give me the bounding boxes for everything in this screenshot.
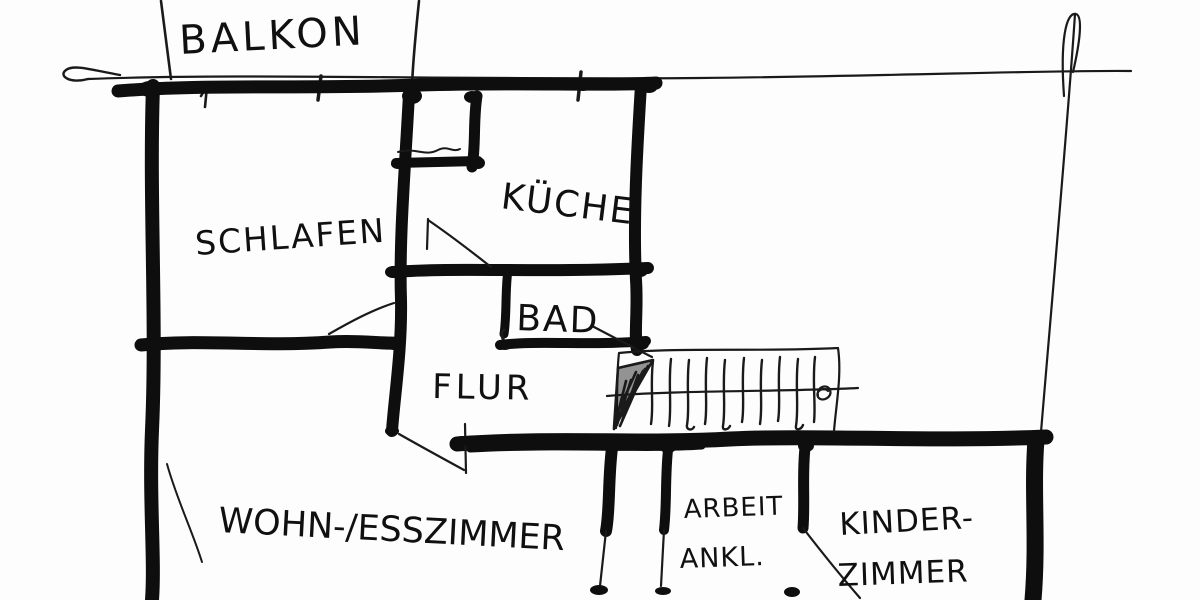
ink-blob: [610, 434, 630, 448]
survey-line-vertical-right: [1041, 14, 1075, 432]
ink-blob: [471, 157, 485, 169]
ink-blob: [784, 587, 800, 597]
balcony-edge-right: [412, 1, 419, 86]
wall-stub-arbeit: [664, 450, 668, 530]
ink-blob: [1022, 431, 1046, 447]
room-label-schlafen: SCHLAFEN: [194, 211, 387, 263]
ink-blob: [386, 338, 402, 350]
ink-blob: [385, 426, 399, 436]
ink-blob: [575, 79, 591, 91]
ink-blob: [391, 159, 405, 169]
wall-right: [1033, 440, 1036, 600]
ink-blob: [590, 585, 608, 595]
staircase: [607, 348, 858, 431]
ink-blob: [138, 81, 162, 97]
ink-blob: [632, 265, 648, 277]
stub1-extension: [600, 531, 606, 586]
ink-blob: [143, 338, 161, 350]
ink-blob: [633, 338, 649, 350]
wall-kueche-bottom: [393, 268, 648, 272]
ink-blob: [385, 266, 401, 278]
room-label-arbeit-line1: ARBEIT: [683, 492, 784, 525]
ink-blob: [660, 443, 676, 453]
room-label-kueche: KÜCHE: [499, 175, 637, 233]
wall-stub-kinder: [803, 448, 805, 528]
room-label-bad: BAD: [516, 298, 600, 342]
ink-blob: [499, 266, 513, 276]
door-swing-kueche: [427, 219, 491, 267]
wall-bad-left: [504, 270, 508, 334]
wall-closet-horizontal: [396, 161, 478, 163]
ink-blob: [454, 436, 470, 446]
ink-blob: [798, 440, 814, 452]
room-label-wohn-esszimmer: WOHN-/ESSZIMMER: [218, 501, 566, 559]
ink-blob: [464, 91, 480, 103]
ink-blob: [498, 340, 512, 350]
room-label-flur: FLUR: [432, 367, 534, 409]
room-label-kinder-line2: ZIMMER: [837, 553, 969, 594]
ink-blob: [311, 81, 329, 93]
balcony-edge-left: [161, 1, 171, 79]
wall-kueche-right: [635, 85, 641, 350]
stub2-extension: [661, 530, 664, 586]
wall-stub-wohn-arbeit: [606, 448, 612, 531]
ink-blob: [402, 88, 422, 104]
floorplan-sketch: BALKON SCHLAFEN KÜCHE BAD FLUR WOHN-/ESS…: [0, 0, 1200, 600]
stair-knot: [817, 386, 830, 399]
floorplan-drawing: BALKON SCHLAFEN KÜCHE BAD FLUR WOHN-/ESS…: [0, 0, 1200, 600]
wall-shadow-curve: [167, 464, 202, 562]
wall-schlafen-right: [392, 94, 409, 431]
ink-blob: [655, 587, 671, 595]
door-swing-schlafen: [329, 303, 394, 334]
room-label-kinder-line1: KINDER-: [839, 500, 975, 543]
wall-schlafen-bottom: [141, 341, 398, 345]
room-label-balkon: BALKON: [178, 8, 367, 64]
wall-bottom: [457, 437, 1046, 444]
ink-blob: [640, 79, 658, 93]
room-labels: BALKON SCHLAFEN KÜCHE BAD FLUR WOHN-/ESS…: [178, 8, 975, 594]
room-label-arbeit-line2: ANKL.: [679, 541, 765, 575]
